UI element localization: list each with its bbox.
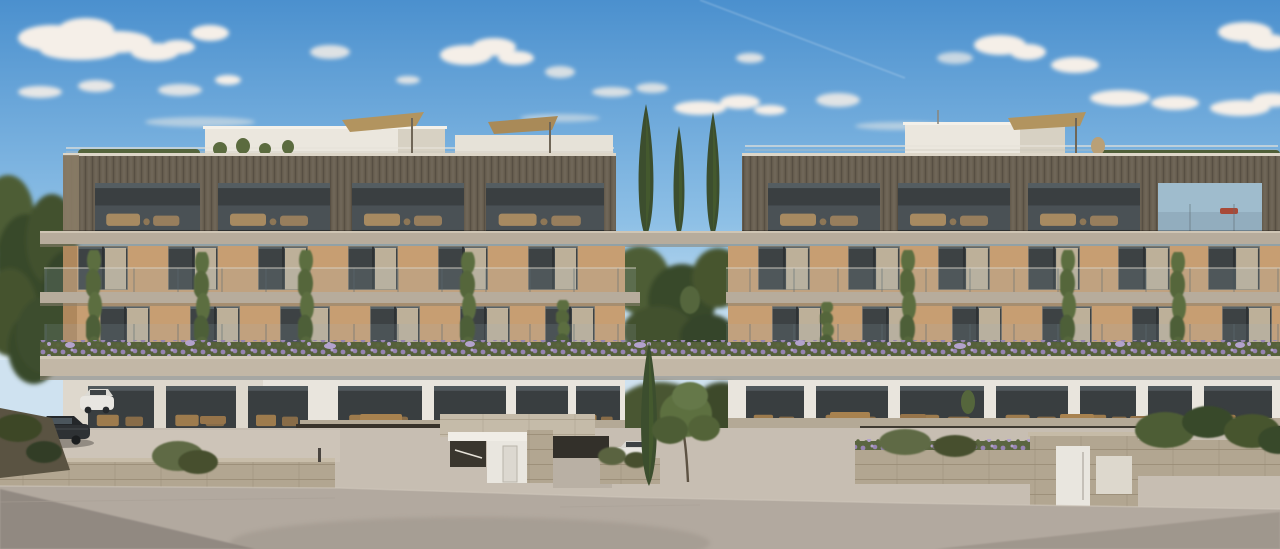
bollard <box>318 448 321 462</box>
lit-corner <box>63 155 79 236</box>
entrance-door <box>503 446 517 482</box>
balcony-railing <box>44 324 636 342</box>
right-top-floor <box>742 153 1280 236</box>
slab-shadow <box>726 303 1280 306</box>
balcony-slab-mid <box>726 292 1280 303</box>
entrance-door <box>1056 446 1090 506</box>
bush <box>26 441 62 463</box>
right-wall-bushes <box>1135 406 1280 476</box>
terrace-fascia-slab <box>40 356 1280 380</box>
recessed-balcony <box>352 183 464 232</box>
lavender-flowers <box>40 340 1280 356</box>
balcony-railing <box>726 268 1280 292</box>
service-panel <box>1096 456 1132 494</box>
recessed-balcony <box>898 183 1010 232</box>
balcony-railing <box>44 268 636 292</box>
balcony-railing <box>726 324 1280 342</box>
cloud <box>937 52 973 64</box>
recessed-balcony <box>768 183 880 232</box>
slab-highlight <box>40 231 1280 233</box>
right-entrance <box>1028 432 1140 508</box>
wall-shrub <box>879 429 931 455</box>
left-top-floor <box>63 153 616 236</box>
terrace-window <box>248 386 308 430</box>
suv-body <box>80 396 114 410</box>
slab-shadow <box>40 376 1280 380</box>
suv-glass <box>90 390 106 395</box>
sedan-wheel <box>71 435 80 444</box>
tree-foliage <box>652 416 688 444</box>
wall-shrub <box>933 435 977 457</box>
slab-shadow <box>40 303 640 306</box>
architectural-render <box>0 0 1280 549</box>
balcony-slab-upper <box>40 231 1280 247</box>
render-canvas <box>0 0 1280 549</box>
recessed-balcony <box>218 183 330 232</box>
recessed-balcony <box>95 183 200 232</box>
tree-foliage <box>672 382 708 410</box>
slab-highlight <box>40 356 1280 359</box>
recessed-balcony <box>486 183 604 232</box>
suv-wheel <box>85 407 92 414</box>
suv-wheel <box>103 407 110 414</box>
potted-plant <box>961 390 975 414</box>
planter-band <box>40 340 1280 356</box>
recessed-balcony <box>1028 183 1140 232</box>
tree-foliage <box>688 415 720 441</box>
roof-plant <box>1091 137 1105 155</box>
car-glass <box>626 442 642 447</box>
balcony-plant <box>680 286 700 314</box>
balcony-slab-mid <box>40 292 640 303</box>
open-corner-terrace <box>1158 183 1262 232</box>
roof-edge <box>742 153 1280 156</box>
planter-shrub <box>598 447 626 465</box>
roof-edge <box>63 153 616 156</box>
terrace-rail-posts <box>1158 204 1262 232</box>
